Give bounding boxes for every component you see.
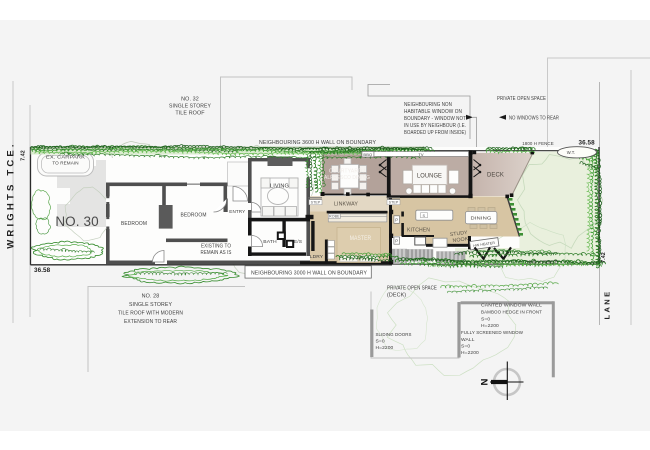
svg-text:WALL: WALL	[461, 337, 475, 343]
svg-text:S: S	[422, 214, 425, 218]
svg-text:ROBE: ROBE	[329, 215, 340, 219]
svg-text:H=2200: H=2200	[461, 350, 479, 356]
svg-text:BOUNDARY - WINDOW NOT: BOUNDARY - WINDOW NOT	[404, 116, 467, 122]
svg-text:S=0: S=0	[376, 339, 385, 345]
svg-text:STEP: STEP	[311, 201, 321, 205]
svg-text:BEDROOM: BEDROOM	[181, 213, 207, 219]
svg-text:IN USE BY NEIGHBOUR (I.E.: IN USE BY NEIGHBOUR (I.E.	[404, 123, 466, 129]
svg-text:BOARDED UP FROM INSIDE): BOARDED UP FROM INSIDE)	[404, 130, 466, 136]
svg-text:SINGLE STOREY: SINGLE STOREY	[169, 104, 211, 110]
svg-text:DINING: DINING	[471, 215, 492, 220]
svg-text:LOUNGE: LOUNGE	[417, 173, 442, 180]
svg-text:NEIGHBOURING 3600 H WALL ON BO: NEIGHBOURING 3600 H WALL ON BOUNDARY	[259, 140, 376, 146]
svg-text:1800 H FENCE: 1800 H FENCE	[526, 260, 557, 265]
svg-text:36.58: 36.58	[34, 267, 51, 274]
svg-text:E/S: E/S	[294, 239, 303, 245]
svg-text:BATH: BATH	[263, 239, 277, 245]
svg-text:NEIGHBOURING 3000 H WALL ON BO: NEIGHBOURING 3000 H WALL ON BOUNDARY	[251, 271, 367, 277]
svg-text:CANTED WINDOW WALL: CANTED WINDOW WALL	[481, 303, 542, 309]
svg-text:NO WINDOWS TO REAR: NO WINDOWS TO REAR	[509, 116, 559, 122]
svg-text:DECK: DECK	[487, 172, 505, 179]
svg-text:ALFRESCO DINING: ALFRESCO DINING	[324, 175, 370, 181]
svg-text:H=2200: H=2200	[481, 323, 499, 329]
svg-text:1800 H FENCE: 1800 H FENCE	[522, 141, 553, 146]
svg-text:SINGLE STOREY: SINGLE STOREY	[129, 302, 172, 308]
svg-text:NO. 30: NO. 30	[55, 214, 98, 229]
svg-text:KITCHEN: KITCHEN	[407, 227, 430, 233]
svg-text:H=2200: H=2200	[376, 345, 394, 351]
svg-text:BAMBOO HEDGE IN FRONT: BAMBOO HEDGE IN FRONT	[481, 310, 542, 316]
svg-text:PRIVATE OPEN SPACE: PRIVATE OPEN SPACE	[387, 286, 437, 292]
svg-text:LDRY: LDRY	[310, 254, 324, 260]
svg-text:BEDROOM: BEDROOM	[121, 221, 147, 227]
svg-text:TILE ROOF WITH MODERN: TILE ROOF WITH MODERN	[118, 311, 183, 317]
svg-text:MASTER: MASTER	[350, 235, 372, 242]
svg-text:PRIVATE OPEN SPACE: PRIVATE OPEN SPACE	[497, 96, 546, 102]
svg-text:NO. 32: NO. 32	[181, 97, 199, 103]
svg-text:NO. 28: NO. 28	[142, 294, 160, 300]
svg-text:ENTRY: ENTRY	[229, 209, 246, 215]
svg-text:HABITABLE WINDOW ON: HABITABLE WINDOW ON	[404, 109, 462, 115]
svg-text:TILE ROOF: TILE ROOF	[175, 111, 205, 117]
svg-text:NEIGHBOURING NON: NEIGHBOURING NON	[404, 102, 452, 108]
svg-text:S=0: S=0	[481, 317, 490, 323]
svg-text:BBQ: BBQ	[363, 152, 372, 157]
svg-text:36.58: 36.58	[579, 140, 596, 147]
svg-text:SLIDING DOORS: SLIDING DOORS	[376, 332, 413, 338]
svg-text:EXTENSION TO REAR: EXTENSION TO REAR	[124, 319, 177, 325]
svg-text:P: P	[395, 218, 398, 223]
svg-text:TV: TV	[418, 152, 424, 157]
svg-text:STEP: STEP	[389, 201, 399, 205]
svg-text:COURTYARD /: COURTYARD /	[329, 169, 365, 175]
svg-text:(DECK): (DECK)	[387, 293, 406, 299]
svg-text:7.42: 7.42	[20, 150, 26, 161]
svg-text:FULLY SCREENED WINDOW: FULLY SCREENED WINDOW	[461, 330, 523, 336]
svg-text:S=0: S=0	[461, 344, 470, 350]
svg-text:P: P	[395, 239, 398, 244]
svg-text:LINKWAY: LINKWAY	[334, 201, 358, 207]
svg-text:LANE: LANE	[602, 289, 611, 319]
svg-text:EX. CARPARK: EX. CARPARK	[46, 155, 86, 160]
svg-text:LIVING: LIVING	[270, 184, 289, 190]
svg-text:7.42: 7.42	[601, 252, 607, 263]
svg-text:W.T.: W.T.	[567, 150, 576, 155]
svg-text:N: N	[480, 378, 491, 385]
svg-text:REMAIN AS IS: REMAIN AS IS	[201, 250, 233, 256]
svg-text:TO REMAIN: TO REMAIN	[52, 161, 78, 166]
svg-text:EXISTING TO: EXISTING TO	[201, 244, 231, 250]
svg-text:WRIGHTS TCE.: WRIGHTS TCE.	[6, 141, 17, 249]
